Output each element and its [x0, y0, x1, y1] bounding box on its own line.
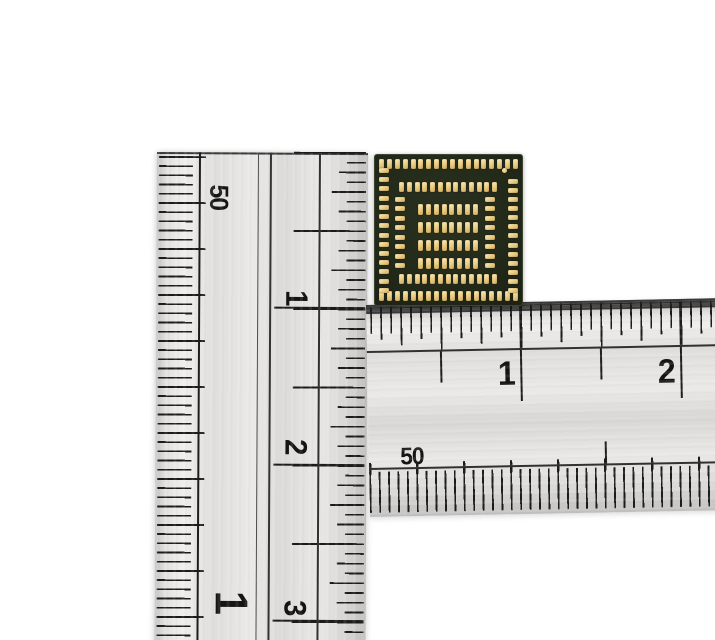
chip-pad [473, 222, 478, 233]
chip-pad [508, 288, 518, 293]
chip-pad [449, 258, 454, 269]
chip-pad [379, 196, 389, 201]
chip-pad [379, 242, 389, 247]
chip-pad [485, 197, 495, 202]
chip-outer-pad-row-bottom [379, 291, 518, 301]
chip-pad [485, 263, 495, 268]
chip-pad [477, 274, 482, 284]
chip-pad [407, 182, 412, 192]
chip-pad [481, 291, 486, 301]
chip-pad [485, 244, 495, 249]
chip-pad [508, 215, 518, 220]
chip-pad [469, 274, 474, 284]
chip-pad [461, 182, 466, 192]
chip-center-pad-row [418, 240, 478, 251]
chip-pad [418, 159, 423, 169]
chip-pad [508, 261, 518, 266]
chip-pad [508, 197, 518, 202]
chip-pad [465, 204, 470, 215]
chip-pad [379, 205, 389, 210]
chip-pad [434, 204, 439, 215]
chip-pad [465, 240, 470, 251]
chip-pad [497, 159, 502, 169]
chip-pad [489, 159, 494, 169]
chip-pad [426, 222, 431, 233]
chip-pad [379, 260, 389, 265]
chip-pad [485, 254, 495, 259]
chip-pad [418, 258, 423, 269]
vertical-ruler-inch-label-2: 2 [277, 439, 313, 455]
chip-pad [469, 182, 474, 192]
chip-pad [442, 240, 447, 251]
chip-pad [513, 159, 518, 169]
chip-pad [453, 274, 458, 284]
horizontal-ruler-half-inch-mark-15 [600, 346, 603, 379]
chip-pad [508, 224, 518, 229]
chip-pad [449, 222, 454, 233]
horizontal-ruler: 1 2 50 [366, 298, 715, 517]
chip-pad [411, 159, 416, 169]
chip-pad [426, 258, 431, 269]
chip-pad [407, 274, 412, 284]
chip-outer-pad-col-left [379, 168, 389, 293]
chip-pad [474, 291, 479, 301]
chip-pad [379, 269, 389, 274]
chip-outer-pad-row-top [379, 159, 518, 169]
chip-pad [434, 258, 439, 269]
chip-pad [484, 274, 489, 284]
chip-pad [379, 186, 389, 191]
vertical-ruler-half-inch-ticks [291, 151, 366, 640]
vertical-ruler-mm-label-50: 50 [203, 184, 234, 210]
vertical-ruler-inch-label-1: 1 [278, 290, 314, 306]
chip-pad [457, 258, 462, 269]
chip-pad [395, 263, 405, 268]
chip-pad [379, 177, 389, 182]
chip-pad [461, 274, 466, 284]
chip-pad [481, 159, 486, 169]
chip-pad [446, 274, 451, 284]
chip-pad [508, 270, 518, 275]
chip-pad [403, 159, 408, 169]
chip-pad [426, 240, 431, 251]
chip-pad [434, 240, 439, 251]
chip-pad [422, 182, 427, 192]
vertical-ruler-inch-mark-2 [273, 464, 364, 466]
chip-pad [379, 279, 389, 284]
chip-pad [442, 204, 447, 215]
chip-pad [508, 243, 518, 248]
chip-pad [411, 291, 416, 301]
chip-pad [395, 254, 405, 259]
chip-pad [395, 197, 405, 202]
chip-pad [497, 291, 502, 301]
vertical-ruler-mm-label-bottom: 1 [205, 591, 259, 615]
chip-pad [473, 204, 478, 215]
chip-pad [449, 240, 454, 251]
chip-center-pad-row [418, 222, 478, 233]
vertical-ruler: 50 1 1 2 3 [154, 152, 368, 640]
chip-pad [466, 291, 471, 301]
chip-pad [485, 235, 495, 240]
chip-pad [430, 182, 435, 192]
chip-pad [450, 159, 455, 169]
chip-pad [395, 225, 405, 230]
chip-pad [457, 204, 462, 215]
chip-pad [395, 216, 405, 221]
chip-pad [446, 182, 451, 192]
horizontal-ruler-mm-ticks [369, 465, 715, 513]
chip-pad [434, 291, 439, 301]
vertical-ruler-center-line-1 [255, 153, 259, 640]
chip-pad [508, 206, 518, 211]
chip-pad [465, 258, 470, 269]
chip-pad [438, 182, 443, 192]
chip-pad [430, 274, 435, 284]
chip-pad [466, 159, 471, 169]
horizontal-ruler-cm-tick [605, 441, 607, 465]
chip-pad [485, 225, 495, 230]
chip-pad [508, 233, 518, 238]
chip-pad [477, 182, 482, 192]
chip-pad [442, 291, 447, 301]
horizontal-ruler-half-inch-mark-05 [440, 350, 443, 383]
horizontal-ruler-inch-label-2: 2 [657, 353, 675, 392]
chip-pad [442, 159, 447, 169]
chip-pad [415, 182, 420, 192]
chip-pad [485, 206, 495, 211]
vertical-ruler-inch-label-3: 3 [277, 600, 313, 616]
chip-inner-pad-col-right [485, 197, 495, 268]
chip-pad [422, 274, 427, 284]
chip-pad [457, 222, 462, 233]
chip-pad [395, 206, 405, 211]
chip-pad [508, 252, 518, 257]
chip-pad [418, 204, 423, 215]
chip-pad [450, 291, 455, 301]
chip-pad [508, 279, 518, 284]
chip-pad [415, 274, 420, 284]
chip-fiducial-dot [502, 168, 507, 173]
chip-pad [399, 182, 404, 192]
vertical-ruler-inch-mark-3 [273, 620, 364, 622]
chip-pad [489, 291, 494, 301]
chip-pad [395, 244, 405, 249]
chip-pad [449, 204, 454, 215]
chip-package [374, 154, 523, 306]
chip-pad [418, 222, 423, 233]
chip-center-pad-row [418, 204, 478, 215]
chip-pad [379, 251, 389, 256]
horizontal-ruler-half-inch-ticks [440, 300, 715, 350]
chip-pad [508, 179, 518, 184]
chip-inner-pad-row-top [399, 182, 497, 192]
vertical-ruler-center-line-2 [267, 153, 272, 640]
chip-pad [473, 258, 478, 269]
chip-pad [465, 222, 470, 233]
chip-pad [426, 291, 431, 301]
chip-pad [379, 223, 389, 228]
chip-pad [379, 233, 389, 238]
chip-pad [492, 274, 497, 284]
chip-and-rulers-photo: 50 1 1 2 3 1 2 50 [0, 0, 715, 640]
chip-pad [453, 182, 458, 192]
chip-pad [434, 159, 439, 169]
chip-pad [379, 214, 389, 219]
chip-pad [442, 222, 447, 233]
chip-pad [485, 216, 495, 221]
chip-pad [399, 274, 404, 284]
chip-pad [379, 288, 389, 293]
chip-pad [442, 258, 447, 269]
horizontal-ruler-inch-label-1: 1 [497, 355, 515, 394]
chip-pad [418, 240, 423, 251]
chip-pad [473, 240, 478, 251]
chip-pad [508, 188, 518, 193]
chip-pad [418, 291, 423, 301]
chip-pad [395, 159, 400, 169]
chip-pad [395, 291, 400, 301]
chip-pad [458, 291, 463, 301]
chip-inner-pad-col-left [395, 197, 405, 268]
vertical-ruler-inch-mark-1 [274, 307, 365, 309]
chip-pad [434, 222, 439, 233]
chip-pad [426, 204, 431, 215]
chip-pad [426, 159, 431, 169]
chip-pad [492, 182, 497, 192]
chip-pad [474, 159, 479, 169]
chip-center-pad-grid [418, 204, 478, 269]
chip-inner-pad-row-bottom [399, 274, 497, 284]
chip-pad [484, 182, 489, 192]
chip-pad [395, 235, 405, 240]
chip-pad [457, 240, 462, 251]
chip-center-pad-row [418, 258, 478, 269]
chip-outer-pad-col-right [508, 179, 518, 293]
chip-pad [458, 159, 463, 169]
chip-pad [379, 168, 389, 173]
chip-pad [438, 274, 443, 284]
chip-pad [403, 291, 408, 301]
